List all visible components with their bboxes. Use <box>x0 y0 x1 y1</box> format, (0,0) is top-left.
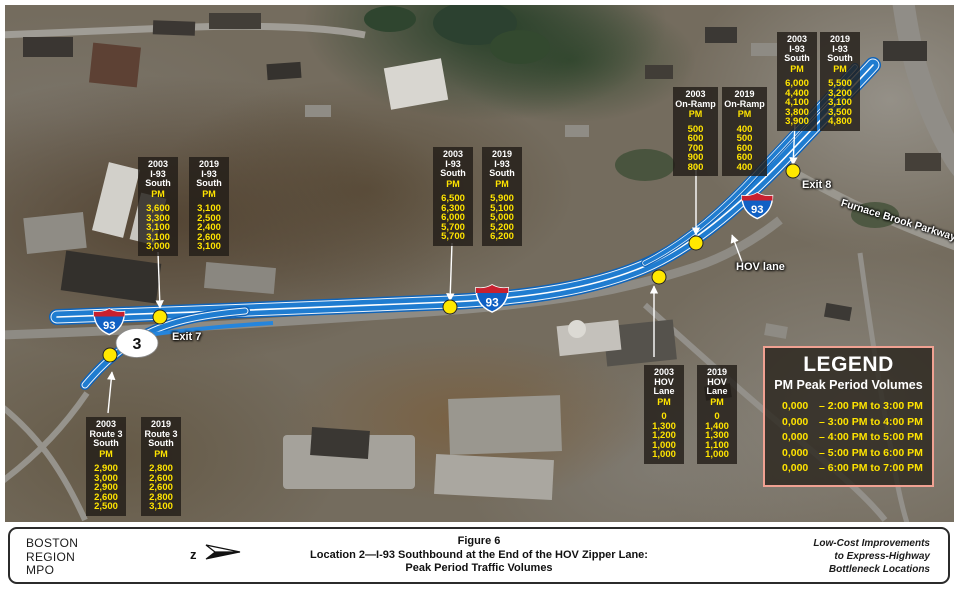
legend-row: 0,000– 5:00 PM to 6:00 PM <box>765 446 932 462</box>
route3-shield-number: 3 <box>133 336 142 353</box>
route3-marker: 3 <box>116 329 158 358</box>
callout-on-ramp: 2003On-RampPM5006007009008002019On-RampP… <box>673 87 767 176</box>
title-bar: BOSTON REGION MPO z Figure 6 Location 2—… <box>0 522 960 591</box>
aerial-map: 93 <box>5 5 954 522</box>
report-credit: Low-Cost Improvements to Express-Highway… <box>813 537 930 576</box>
title-bar-frame: BOSTON REGION MPO z Figure 6 Location 2—… <box>8 527 950 584</box>
figure-title: Figure 6 Location 2—I-93 Southbound at t… <box>10 535 948 576</box>
volume-column: 2003On-RampPM500600700900800 <box>673 87 718 176</box>
callout-route3-south: 2003Route 3SouthPM2,9003,0002,9002,6002,… <box>86 417 181 516</box>
callout-i93-south-middle: 2003I-93SouthPM6,5006,3006,0005,7005,700… <box>433 147 522 246</box>
figure-title-line: Location 2—I-93 Southbound at the End of… <box>10 549 948 563</box>
credit-line: Low-Cost Improvements <box>813 537 930 550</box>
volume-column: 2003I-93SouthPM3,6003,3003,1003,1003,000 <box>138 157 178 256</box>
exit8-label: Exit 8 <box>802 179 831 191</box>
volume-column: 2019I-93SouthPM5,9005,1005,0005,2006,200 <box>482 147 522 246</box>
volume-column: 2019I-93SouthPM5,5003,2003,1003,5004,800 <box>820 32 860 131</box>
legend-row: 0,000– 6:00 PM to 7:00 PM <box>765 461 932 477</box>
hov-lane-label: HOV lane <box>736 261 785 273</box>
legend-row: 0,000– 3:00 PM to 4:00 PM <box>765 415 932 431</box>
figure-page: 93 <box>0 0 960 591</box>
volume-column: 2003I-93SouthPM6,0004,4004,1003,8003,900 <box>777 32 817 131</box>
volume-column: 2019On-RampPM400500600600400 <box>722 87 767 176</box>
credit-line: to Express-Highway <box>813 550 930 563</box>
exit7-label: Exit 7 <box>172 331 201 343</box>
legend-title: LEGEND <box>765 353 932 377</box>
legend-row: 0,000– 2:00 PM to 3:00 PM <box>765 399 932 415</box>
legend-rows: 0,000– 2:00 PM to 3:00 PM0,000– 3:00 PM … <box>765 399 932 477</box>
volume-column: 2003Route 3SouthPM2,9003,0002,9002,6002,… <box>86 417 126 516</box>
figure-number: Figure 6 <box>10 535 948 549</box>
volume-column: 2019Route 3SouthPM2,8002,6002,6002,8003,… <box>141 417 181 516</box>
volume-column: 2019HOVLanePM01,4001,3001,1001,000 <box>697 365 737 464</box>
i93-shield-right <box>742 193 773 219</box>
volume-column: 2003I-93SouthPM6,5006,3006,0005,7005,700 <box>433 147 473 246</box>
legend-subtitle: PM Peak Period Volumes <box>765 377 932 394</box>
callout-i93-south-left: 2003I-93SouthPM3,6003,3003,1003,1003,000… <box>138 157 229 256</box>
credit-line: Bottleneck Locations <box>813 563 930 576</box>
figure-title-line: Peak Period Traffic Volumes <box>10 562 948 576</box>
volume-column: 2003HOVLanePM01,3001,2001,0001,000 <box>644 365 684 464</box>
legend-box: LEGEND PM Peak Period Volumes 0,000– 2:0… <box>763 346 934 487</box>
volume-column: 2019I-93SouthPM3,1002,5002,4002,6003,100 <box>189 157 229 256</box>
callout-hov-lane: 2003HOVLanePM01,3001,2001,0001,0002019HO… <box>644 365 737 464</box>
legend-row: 0,000– 4:00 PM to 5:00 PM <box>765 430 932 446</box>
callout-i93-south-exit8: 2003I-93SouthPM6,0004,4004,1003,8003,900… <box>777 32 860 131</box>
